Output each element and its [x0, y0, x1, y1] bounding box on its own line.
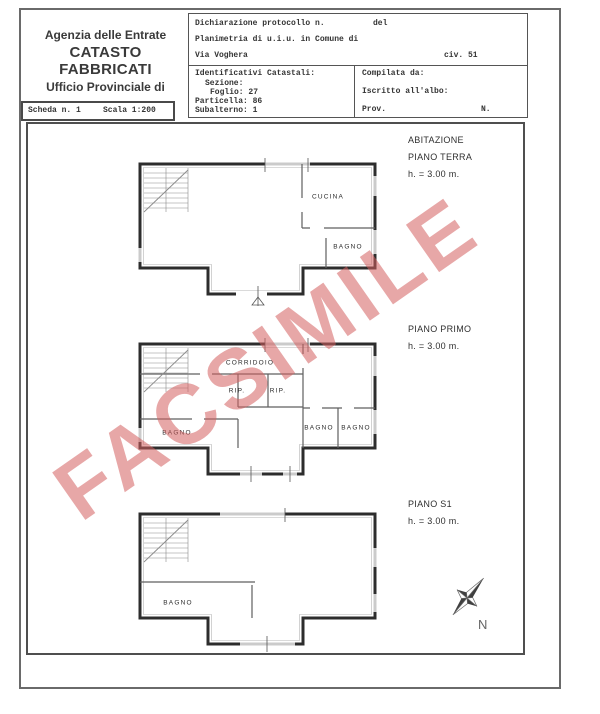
prov-label: Prov.: [362, 105, 386, 114]
room-label-bagno-primo-r2: BAGNO: [341, 425, 370, 432]
form-divider-horizontal: [189, 65, 527, 66]
agency-line1: Agenzia delle Entrate: [28, 28, 183, 42]
compass-north-label: N: [478, 617, 487, 632]
room-label-cucina: CUCINA: [312, 194, 344, 201]
stairs-icon: [144, 348, 188, 392]
scheda-box: Scheda n. 1 Scala 1:200: [21, 101, 175, 121]
caption-s1-height: h. = 3.00 m.: [408, 513, 459, 530]
caption-primo-title: PIANO PRIMO: [408, 321, 471, 338]
iscritto-label: Iscritto all'albo:: [362, 87, 448, 96]
particella-value: Particella: 86: [195, 97, 262, 106]
sezione-label: Sezione:: [205, 79, 243, 88]
del-label: del: [373, 19, 387, 28]
caption-primo-height: h. = 3.00 m.: [408, 338, 471, 355]
civic-number: civ. 51: [444, 51, 478, 60]
room-label-bagno-s1: BAGNO: [163, 600, 192, 607]
room-label-bagno-terra: BAGNO: [333, 244, 362, 251]
compilata-label: Compilata da:: [362, 69, 424, 78]
caption-terra-height: h. = 3.00 m.: [408, 166, 472, 183]
caption-piano-terra: ABITAZIONE PIANO TERRA h. = 3.00 m.: [408, 132, 472, 183]
agency-header: Agenzia delle Entrate CATASTO FABBRICATI…: [28, 28, 183, 94]
floor-plan-piano-s1: [134, 508, 381, 660]
cadastral-plan-page: Agenzia delle Entrate CATASTO FABBRICATI…: [0, 0, 600, 714]
scheda-number: Scheda n. 1: [28, 106, 81, 115]
protocollo-label: Dichiarazione protocollo n.: [195, 19, 325, 28]
identificativi-title: Identificativi Catastali:: [195, 69, 315, 78]
declaration-form: Dichiarazione protocollo n. del Planimet…: [188, 13, 528, 118]
caption-terra-title: PIANO TERRA: [408, 149, 472, 166]
street-value: Via Voghera: [195, 51, 248, 60]
caption-s1-title: PIANO S1: [408, 496, 459, 513]
caption-piano-primo: PIANO PRIMO h. = 3.00 m.: [408, 321, 471, 355]
compass-rose-icon: [440, 568, 510, 638]
stairs-icon: [144, 168, 188, 212]
room-label-rip2: RIP.: [270, 388, 287, 395]
form-divider-vertical: [354, 65, 355, 117]
planimetria-label: Planimetria di u.i.u. in Comune di: [195, 35, 358, 44]
stairs-icon: [144, 518, 188, 562]
room-label-bagno-primo-r1: BAGNO: [304, 425, 333, 432]
room-label-bagno-primo-left: BAGNO: [162, 430, 191, 437]
scale-label: Scala 1:200: [103, 106, 156, 115]
floor-plan-piano-terra: [134, 158, 381, 310]
agency-line2: CATASTO FABBRICATI: [28, 44, 183, 78]
agency-line3: Ufficio Provinciale di: [28, 80, 183, 94]
foglio-value: Foglio: 27: [210, 88, 258, 97]
caption-abitazione: ABITAZIONE: [408, 132, 472, 149]
subalterno-value: Subalterno: 1: [195, 106, 257, 115]
room-label-corridoio: CORRIDOIO: [226, 360, 274, 367]
n-label: N.: [481, 105, 491, 114]
room-label-rip1: RIP.: [229, 388, 246, 395]
caption-piano-s1: PIANO S1 h. = 3.00 m.: [408, 496, 459, 530]
